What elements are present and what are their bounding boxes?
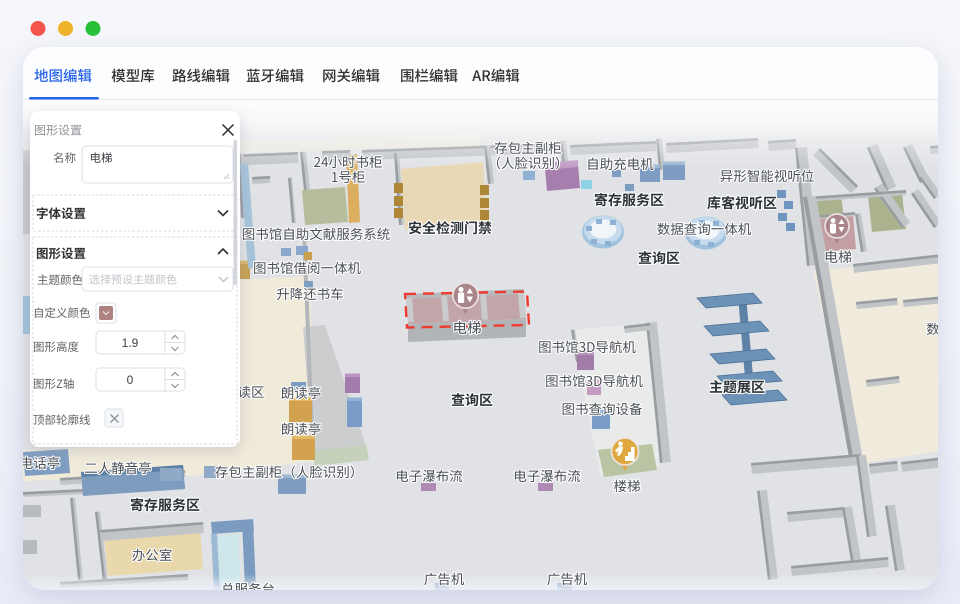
svg-text:0: 0 xyxy=(127,373,134,387)
svg-text:1.9: 1.9 xyxy=(122,336,139,350)
